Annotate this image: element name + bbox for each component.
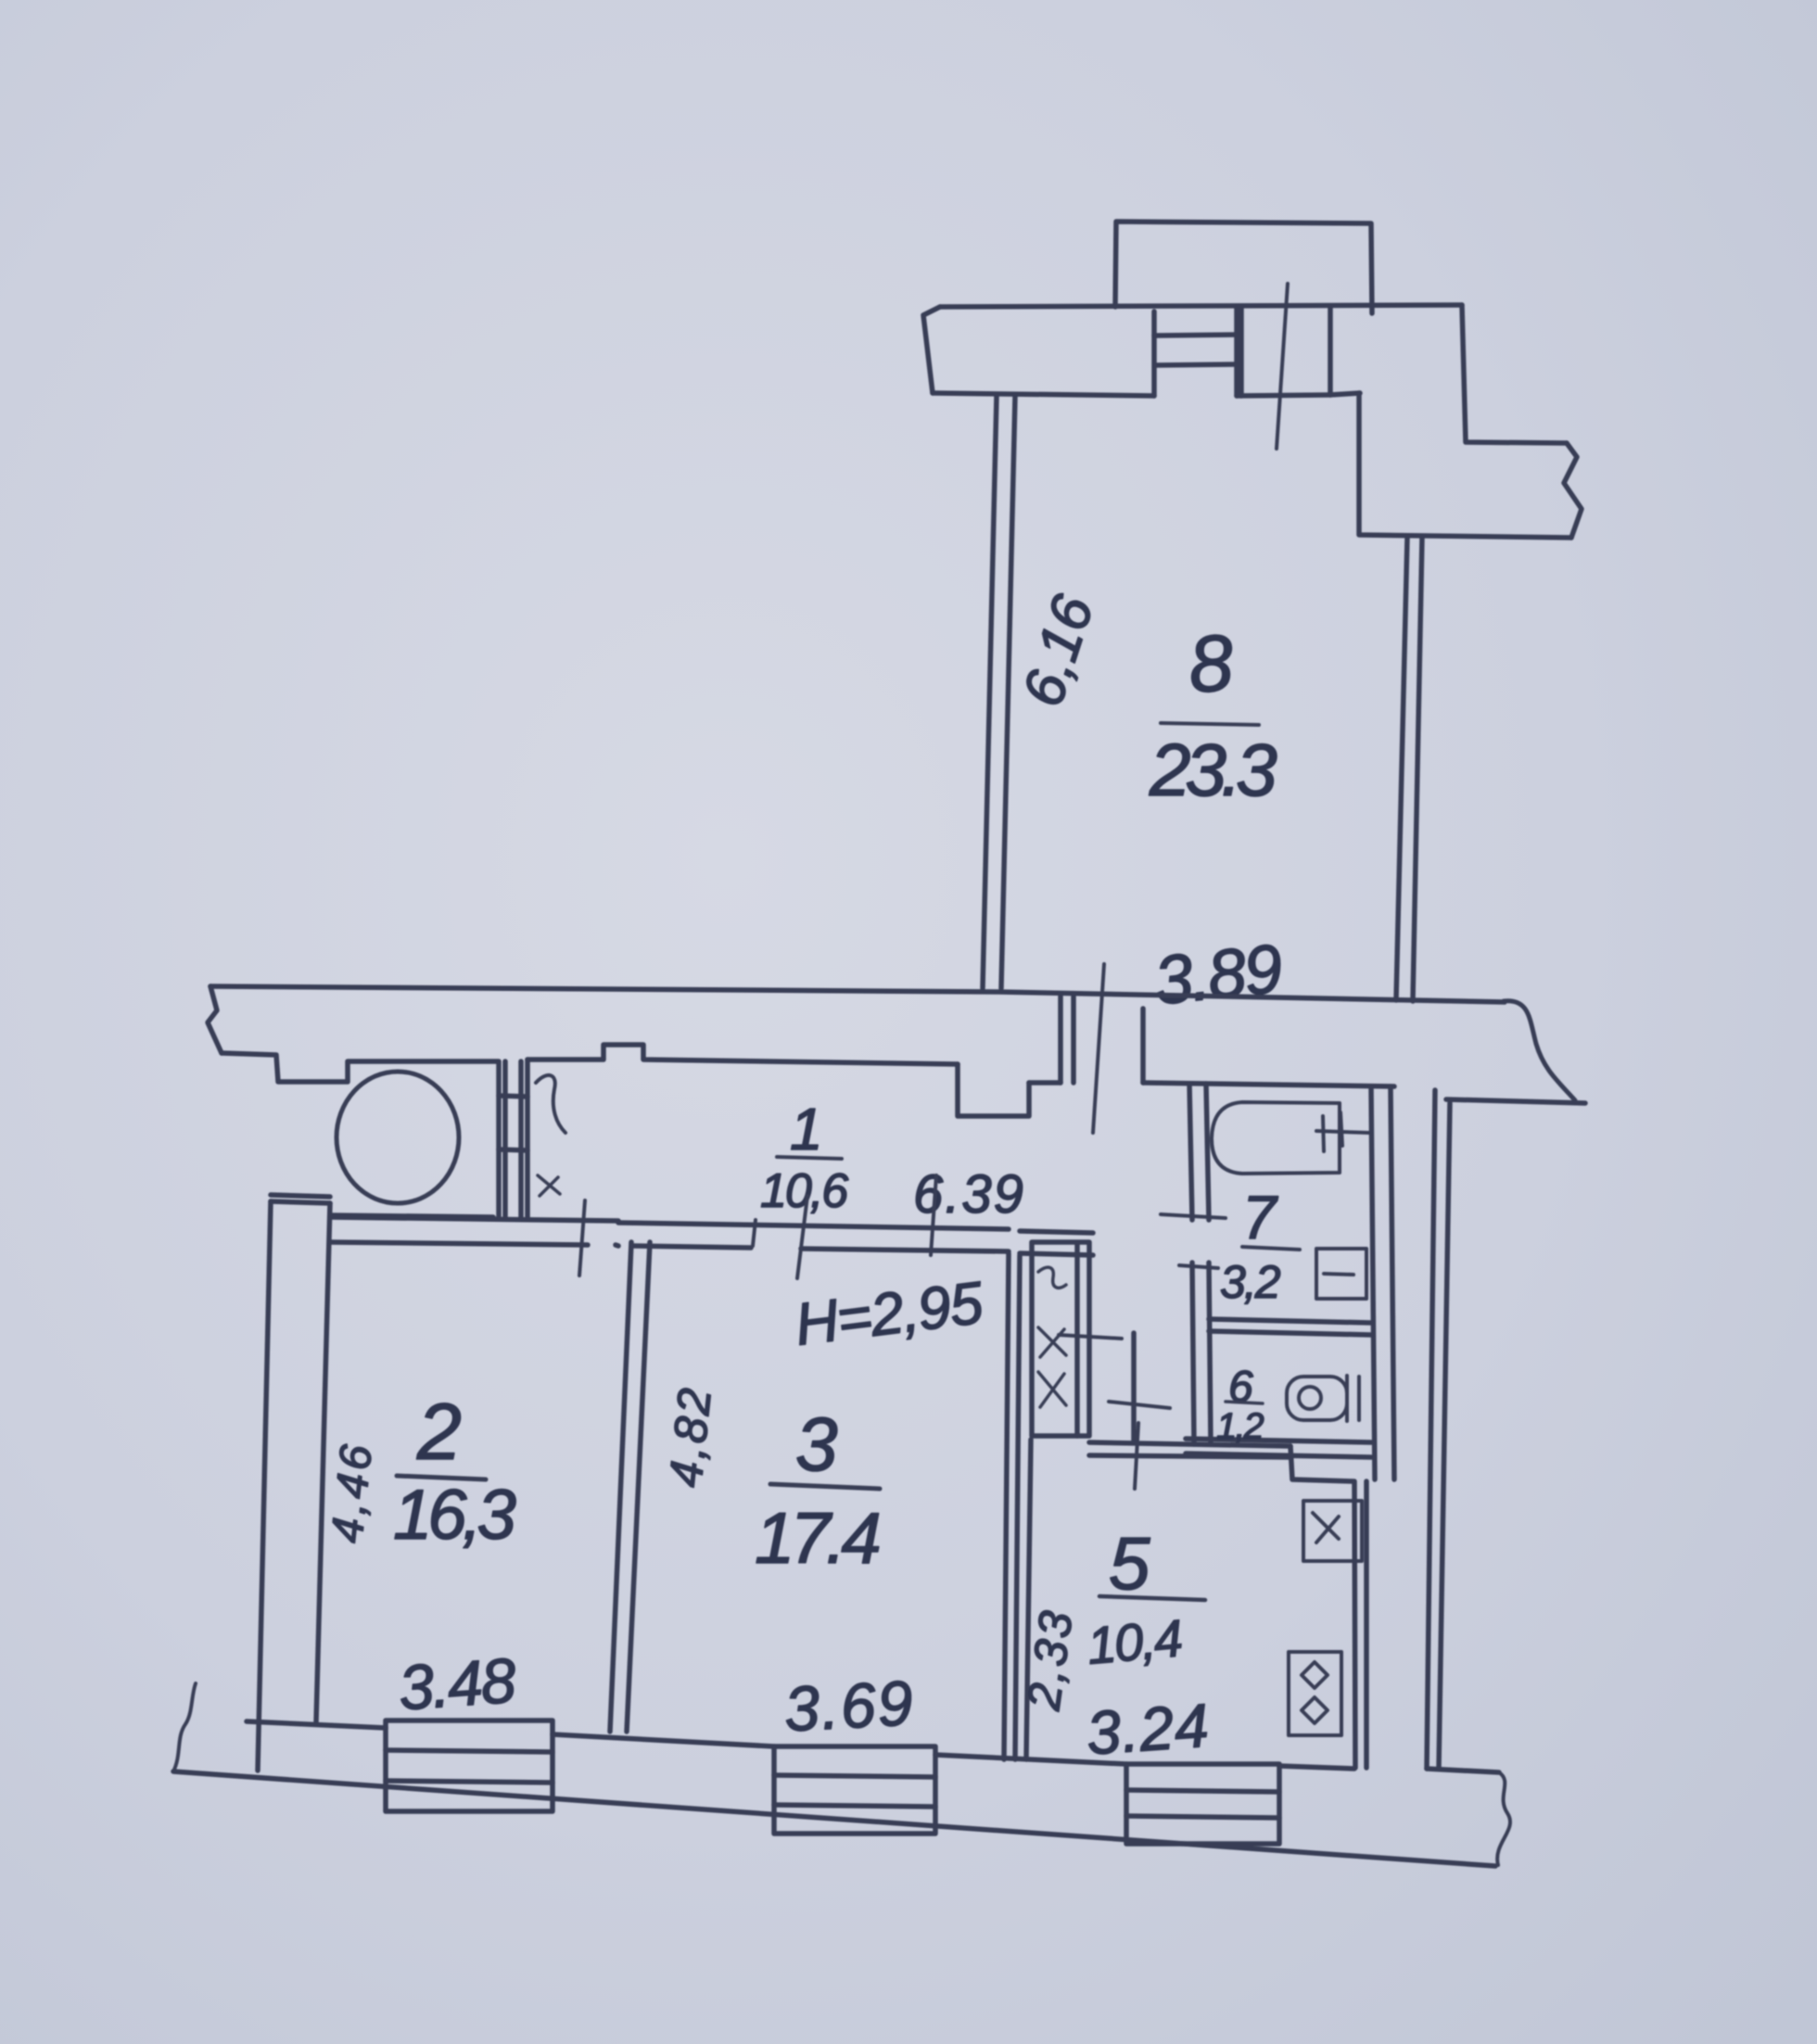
svg-text:3.69: 3.69 [782, 1668, 916, 1745]
svg-text:3.89: 3.89 [1150, 930, 1285, 1020]
svg-text:3: 3 [795, 1403, 838, 1487]
svg-text:4,82: 4,82 [659, 1383, 721, 1490]
svg-text:1: 1 [790, 1096, 823, 1162]
svg-text:2: 2 [416, 1388, 462, 1477]
svg-text:16,3: 16,3 [393, 1476, 516, 1555]
svg-text:10,4: 10,4 [1085, 1608, 1184, 1675]
svg-text:1,2: 1,2 [1216, 1406, 1264, 1447]
svg-text:17.4: 17.4 [755, 1497, 879, 1579]
svg-text:6: 6 [1228, 1363, 1253, 1412]
svg-text:3.24: 3.24 [1085, 1691, 1212, 1768]
svg-text:6.39: 6.39 [913, 1164, 1025, 1225]
svg-text:3.48: 3.48 [397, 1645, 519, 1724]
svg-text:5: 5 [1109, 1522, 1150, 1605]
svg-text:23.3: 23.3 [1149, 729, 1277, 811]
svg-text:3,2: 3,2 [1220, 1256, 1281, 1308]
svg-text:7: 7 [1242, 1183, 1278, 1251]
svg-text:8: 8 [1186, 618, 1237, 710]
